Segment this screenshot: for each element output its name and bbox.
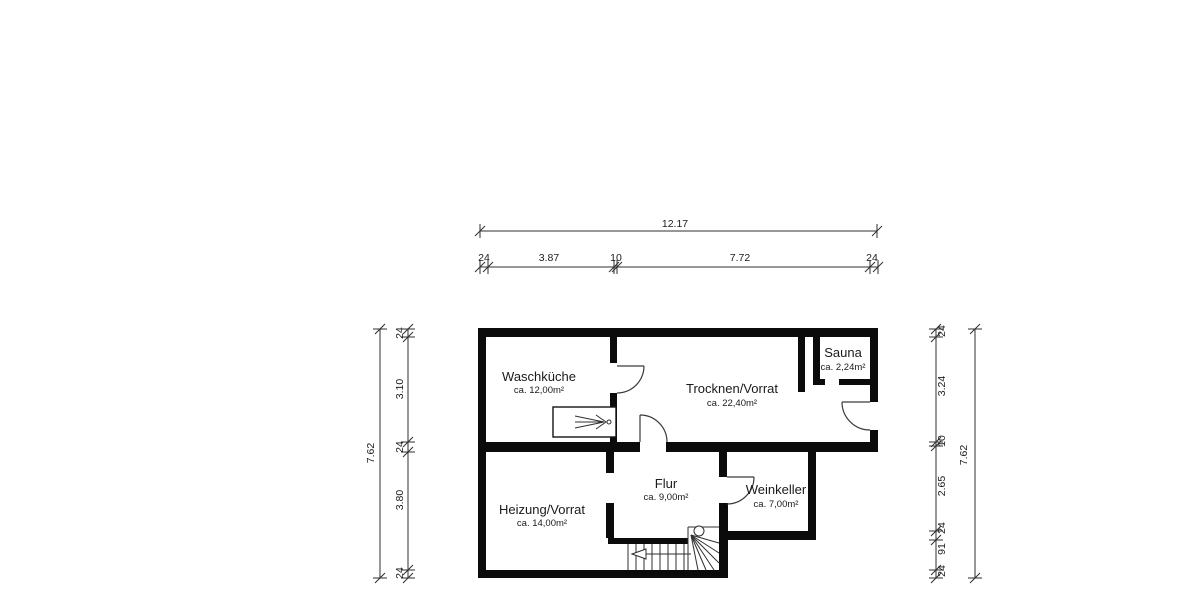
door-swing-arc bbox=[842, 402, 870, 430]
dim-value: 3.10 bbox=[394, 379, 406, 400]
door-waschkueche-trocknen bbox=[617, 366, 644, 393]
wall-upper-right-a bbox=[870, 328, 878, 402]
dim-value: 24 bbox=[936, 522, 948, 534]
wall-stair-right bbox=[719, 503, 728, 578]
room-label-waschkueche: Waschküche ca. 12,00m² bbox=[502, 369, 576, 396]
room-area: ca. 22,40m² bbox=[707, 398, 757, 409]
wall-left bbox=[478, 328, 486, 578]
dim-value: 24 bbox=[936, 565, 948, 577]
dim-value: 7.62 bbox=[365, 443, 377, 464]
room-name: Weinkeller bbox=[746, 482, 807, 497]
dimension-left-overall: 7.62 bbox=[365, 324, 387, 583]
dim-value: 3.24 bbox=[936, 376, 948, 397]
room-name: Heizung/Vorrat bbox=[499, 502, 585, 517]
room-label-sauna: Sauna ca. 2,24m² bbox=[821, 345, 866, 373]
dim-value: 24 bbox=[936, 325, 948, 337]
dim-value: 7.72 bbox=[730, 252, 751, 264]
dim-value: 2.65 bbox=[936, 476, 948, 497]
wall-bottom bbox=[478, 570, 728, 578]
door-trocknen-exterior bbox=[842, 402, 870, 430]
dim-value: 3.80 bbox=[394, 490, 406, 511]
dimension-top-segments: 24 3.87 10 7.72 24 bbox=[475, 252, 883, 274]
wall-mid-band-left bbox=[478, 442, 640, 452]
dimension-left-segments: 24 3.10 24 3.80 24 bbox=[394, 324, 415, 583]
walls bbox=[478, 328, 878, 578]
room-label-flur: Flur ca. 9,00m² bbox=[644, 476, 689, 503]
stair-newel-post bbox=[694, 526, 704, 536]
wall-sauna-bottom-b bbox=[839, 379, 870, 385]
floor-plan-canvas: Waschküche ca. 12,00m² Trocknen/Vorrat c… bbox=[0, 0, 1200, 600]
wall-sauna-bottom-a bbox=[813, 379, 825, 385]
stair-treads bbox=[628, 527, 719, 570]
wall-weinkeller-bottom bbox=[719, 531, 816, 540]
dim-value: 24 bbox=[866, 252, 878, 264]
dimension-top-overall: 12.17 bbox=[475, 218, 882, 238]
floor-plan-drawing: Waschküche ca. 12,00m² Trocknen/Vorrat c… bbox=[0, 0, 1200, 600]
wall-waschkueche-divider-a bbox=[610, 337, 617, 363]
room-name: Sauna bbox=[824, 345, 862, 360]
room-name: Waschküche bbox=[502, 369, 576, 384]
dim-value: 24 bbox=[394, 441, 406, 453]
wall-upper-right-b bbox=[870, 430, 878, 452]
dim-value: 24 bbox=[478, 252, 490, 264]
door-swing-arc bbox=[640, 415, 667, 442]
wall-heizung-flur-a bbox=[606, 452, 614, 473]
dim-value: 24 bbox=[394, 327, 406, 339]
dim-value: 91 bbox=[936, 543, 948, 555]
room-label-trocknen: Trocknen/Vorrat ca. 22,40m² bbox=[686, 381, 778, 409]
room-area: ca. 12,00m² bbox=[514, 385, 564, 396]
staircase bbox=[628, 526, 719, 570]
dim-value: 3.87 bbox=[539, 252, 560, 264]
dim-value: 10 bbox=[936, 435, 948, 447]
dim-value: 12.17 bbox=[662, 218, 688, 230]
room-area: ca. 9,00m² bbox=[644, 492, 689, 503]
room-label-heizung: Heizung/Vorrat ca. 14,00m² bbox=[499, 502, 585, 529]
wall-mid-band-right bbox=[666, 442, 878, 452]
wall-stair-top bbox=[608, 538, 688, 544]
wall-sauna-divider bbox=[798, 337, 805, 392]
stair-direction-arrow-icon bbox=[632, 549, 691, 559]
dim-value: 7.62 bbox=[958, 445, 970, 466]
stair-winder-treads bbox=[691, 535, 719, 570]
room-name: Trocknen/Vorrat bbox=[686, 381, 778, 396]
light-shaft bbox=[553, 407, 616, 437]
dim-value: 10 bbox=[610, 252, 622, 264]
wall-lower-right bbox=[808, 452, 816, 540]
wall-heizung-flur-b bbox=[606, 503, 614, 538]
room-area: ca. 2,24m² bbox=[821, 362, 866, 373]
room-label-weinkeller: Weinkeller ca. 7,00m² bbox=[746, 482, 807, 510]
room-area: ca. 14,00m² bbox=[517, 518, 567, 529]
wall-sauna-inner bbox=[813, 337, 820, 385]
door-swing-arc bbox=[617, 366, 644, 393]
room-area: ca. 7,00m² bbox=[754, 499, 799, 510]
wall-flur-weinkeller bbox=[719, 452, 727, 477]
dimension-right-overall: 7.62 bbox=[958, 324, 982, 583]
wall-top bbox=[478, 328, 878, 337]
dimension-right-segments: 24 3.24 10 2.65 24 91 24 bbox=[929, 324, 948, 583]
door-flur-trocknen bbox=[640, 415, 667, 442]
dim-value: 24 bbox=[394, 567, 406, 579]
room-name: Flur bbox=[655, 476, 678, 491]
